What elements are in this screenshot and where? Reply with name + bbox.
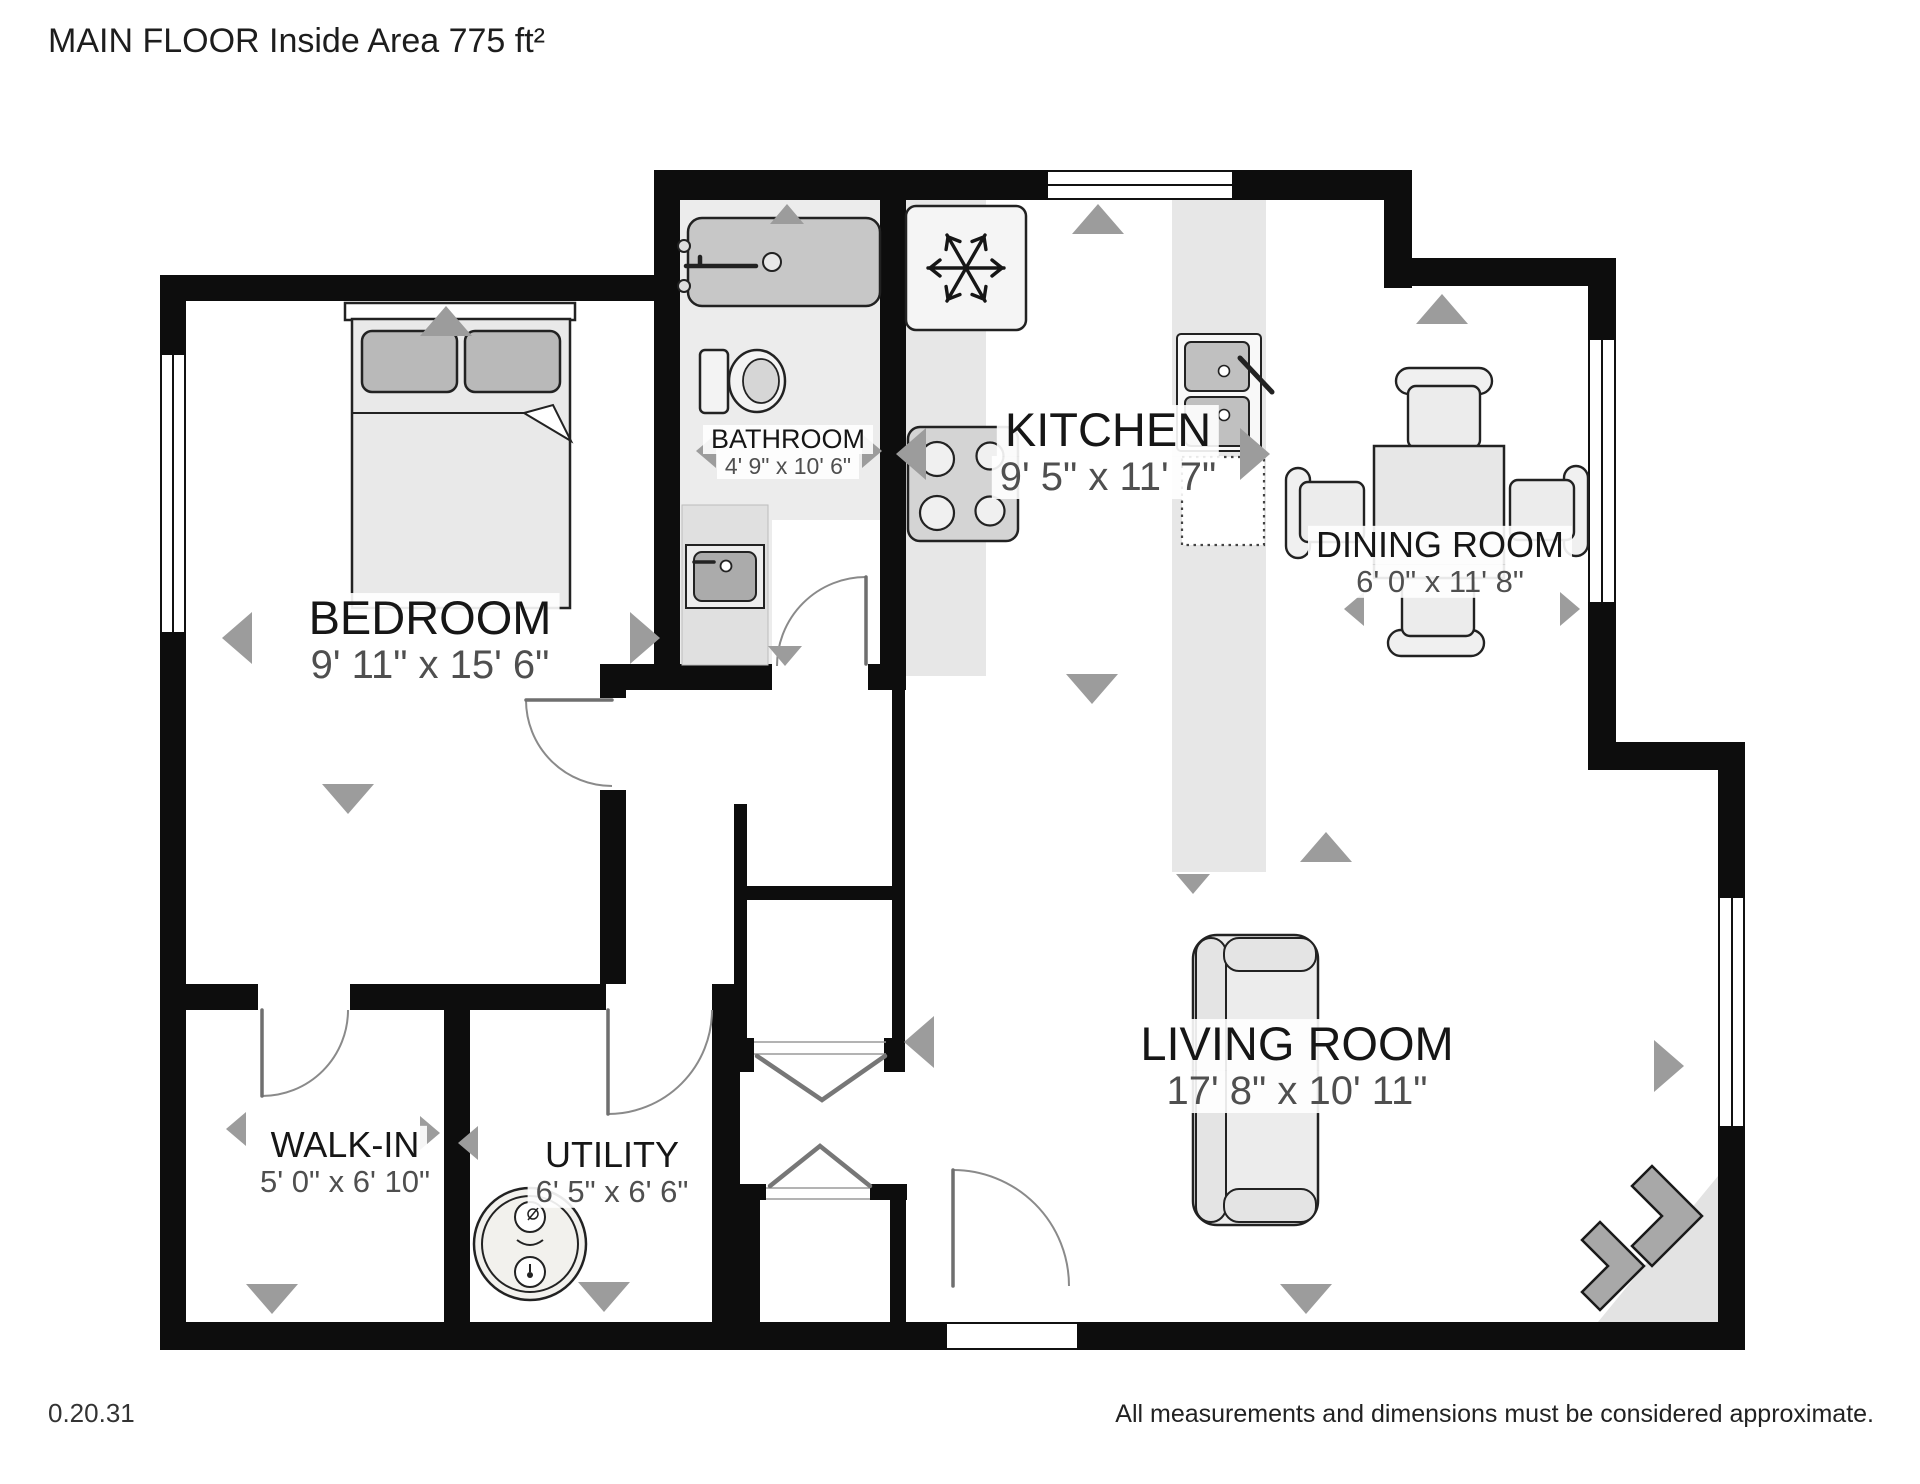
marker-left-icon	[458, 1126, 478, 1160]
room-label-kitchen: KITCHEN 9' 5" x 11' 7"	[992, 405, 1224, 499]
room-name: WALK-IN	[263, 1126, 428, 1165]
marker-down-icon	[578, 1282, 630, 1312]
room-label-bathroom: BATHROOM 4' 9" x 10' 6"	[703, 425, 873, 479]
room-label-living: LIVING ROOM 17' 8" x 10' 11"	[1132, 1019, 1461, 1113]
bathroom-sink	[682, 505, 768, 665]
disclaimer-text: All measurements and dimensions must be …	[1115, 1400, 1874, 1429]
marker-down-icon	[768, 646, 802, 666]
room-label-dining: DINING ROOM 6' 0" x 11' 8"	[1308, 526, 1572, 598]
marker-up-icon	[1072, 204, 1124, 234]
room-name: UTILITY	[537, 1136, 687, 1175]
room-dimensions: 17' 8" x 10' 11"	[1159, 1070, 1436, 1113]
room-dimensions: 5' 0" x 6' 10"	[252, 1165, 438, 1198]
bed-pillow	[362, 331, 457, 392]
marker-up-icon	[1416, 294, 1468, 324]
bed-pillow	[465, 331, 560, 392]
marker-up-icon	[420, 306, 472, 336]
bifold-door	[757, 1056, 885, 1100]
marker-right-icon	[1240, 428, 1270, 480]
marker-up-icon	[770, 204, 804, 224]
room-name: BEDROOM	[301, 593, 560, 644]
marker-right-icon	[1654, 1040, 1684, 1092]
room-label-walkin: WALK-IN 5' 0" x 6' 10"	[252, 1126, 438, 1198]
marker-down-icon	[1280, 1284, 1332, 1314]
marker-left-icon	[226, 1112, 246, 1146]
furniture-layer	[0, 0, 1920, 1484]
room-dimensions: 9' 11" x 15' 6"	[303, 644, 558, 687]
room-dimensions: 6' 5" x 6' 6"	[528, 1175, 697, 1208]
marker-down-icon	[322, 784, 374, 814]
room-name: KITCHEN	[997, 405, 1219, 456]
utility-door-arc	[608, 1010, 712, 1114]
room-dimensions: 9' 5" x 11' 7"	[992, 456, 1224, 499]
walkin-door-arc	[262, 1010, 348, 1096]
page-title: MAIN FLOOR Inside Area 775 ft²	[48, 22, 545, 61]
closet-bifold-doors	[754, 1042, 886, 1199]
toilet-icon	[700, 350, 785, 413]
dining-table-set	[1286, 368, 1588, 656]
marker-down-icon	[246, 1284, 298, 1314]
marker-left-icon	[904, 1016, 934, 1068]
marker-up-icon	[1300, 832, 1352, 862]
bed	[345, 303, 575, 608]
room-dimensions: 6' 0" x 11' 8"	[1348, 565, 1532, 598]
bifold-door	[770, 1146, 870, 1186]
marker-down-icon	[1066, 674, 1118, 704]
bathtub	[678, 218, 880, 306]
bedroom-door-arc	[526, 700, 612, 786]
floor-plan-page: MAIN FLOOR Inside Area 775 ft²	[0, 0, 1920, 1484]
marker-right-icon	[630, 612, 660, 664]
room-label-bedroom: BEDROOM 9' 11" x 15' 6"	[301, 593, 560, 687]
room-name: BATHROOM	[703, 425, 873, 454]
bathtub-drain	[763, 253, 781, 271]
room-name: DINING ROOM	[1308, 526, 1572, 565]
entry-door-arc	[953, 1170, 1069, 1286]
room-name: LIVING ROOM	[1132, 1019, 1461, 1070]
room-label-utility: UTILITY 6' 5" x 6' 6"	[528, 1136, 697, 1208]
marker-down-icon	[1176, 874, 1210, 894]
corner-fireplace	[1582, 1166, 1718, 1322]
version-label: 0.20.31	[48, 1398, 135, 1429]
refrigerator	[906, 206, 1026, 330]
room-dimensions: 4' 9" x 10' 6"	[717, 454, 859, 479]
marker-left-icon	[896, 428, 926, 480]
marker-left-icon	[222, 612, 252, 664]
dining-chair	[1408, 386, 1480, 448]
